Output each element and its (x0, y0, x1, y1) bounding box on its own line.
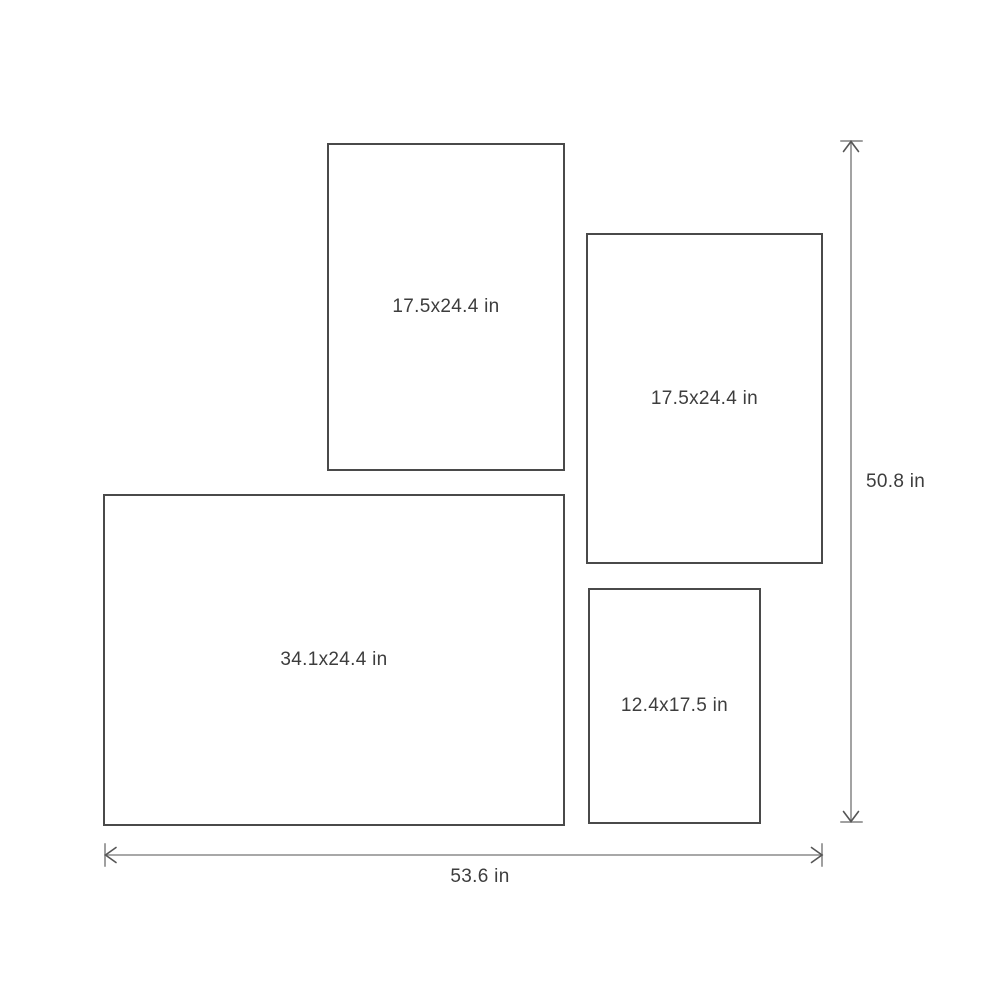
frame-box-bottom-left: 34.1x24.4 in (103, 494, 565, 826)
frame-layout-diagram: 17.5x24.4 in 17.5x24.4 in 34.1x24.4 in 1… (0, 0, 1000, 1000)
height-dimension-line (841, 141, 862, 822)
frame-box-bottom-right: 12.4x17.5 in (588, 588, 761, 824)
frame-size-label: 34.1x24.4 in (280, 649, 387, 671)
frame-size-label: 17.5x24.4 in (651, 388, 758, 410)
width-dimension-line (105, 844, 822, 866)
frame-size-label: 12.4x17.5 in (621, 695, 728, 717)
frame-box-right: 17.5x24.4 in (586, 233, 823, 564)
frame-box-top-left: 17.5x24.4 in (327, 143, 565, 471)
overall-height-label: 50.8 in (866, 471, 925, 493)
overall-width-label: 53.6 in (450, 866, 509, 888)
frame-size-label: 17.5x24.4 in (392, 296, 499, 318)
